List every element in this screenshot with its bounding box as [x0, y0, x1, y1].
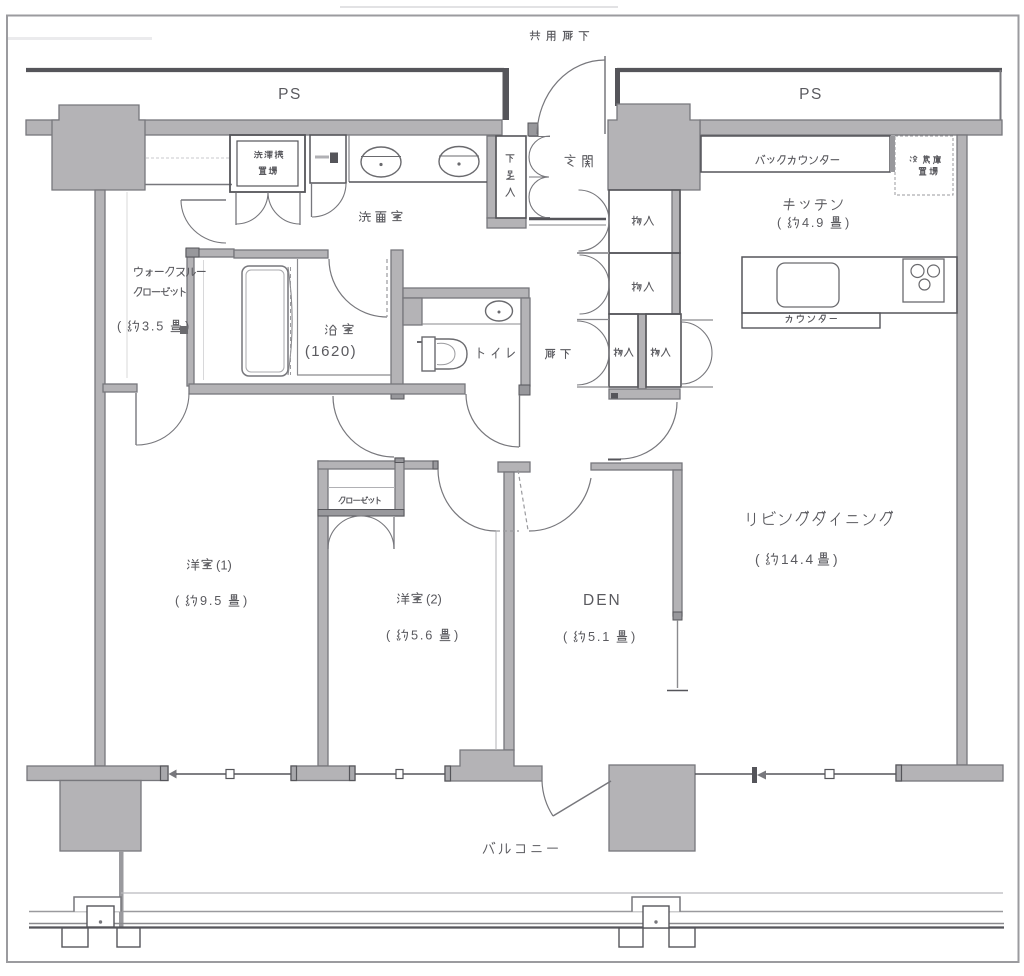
- svg-text:(1620): (1620): [305, 343, 357, 360]
- svg-text:(2): (2): [426, 592, 442, 607]
- svg-text:): ): [845, 215, 851, 230]
- svg-text:(: (: [386, 628, 392, 643]
- svg-text:14.4: 14.4: [781, 552, 815, 567]
- svg-text:(1): (1): [216, 558, 232, 573]
- svg-text:9.5: 9.5: [200, 593, 223, 608]
- svg-text:3.5: 3.5: [142, 319, 165, 334]
- svg-text:): ): [454, 628, 460, 643]
- svg-text:(: (: [117, 319, 123, 334]
- svg-text:(: (: [175, 593, 181, 608]
- svg-text:5.1: 5.1: [588, 629, 611, 644]
- svg-text:): ): [833, 552, 839, 567]
- svg-text:(: (: [755, 552, 761, 567]
- svg-text:4.9: 4.9: [802, 215, 825, 230]
- svg-text:(: (: [777, 215, 783, 230]
- svg-text:): ): [631, 629, 637, 644]
- svg-text:(: (: [563, 629, 569, 644]
- svg-text:): ): [243, 593, 249, 608]
- svg-text:PS: PS: [799, 86, 823, 103]
- svg-text:5.6: 5.6: [411, 628, 434, 643]
- svg-text:DEN: DEN: [583, 592, 622, 609]
- svg-text:PS: PS: [278, 86, 302, 103]
